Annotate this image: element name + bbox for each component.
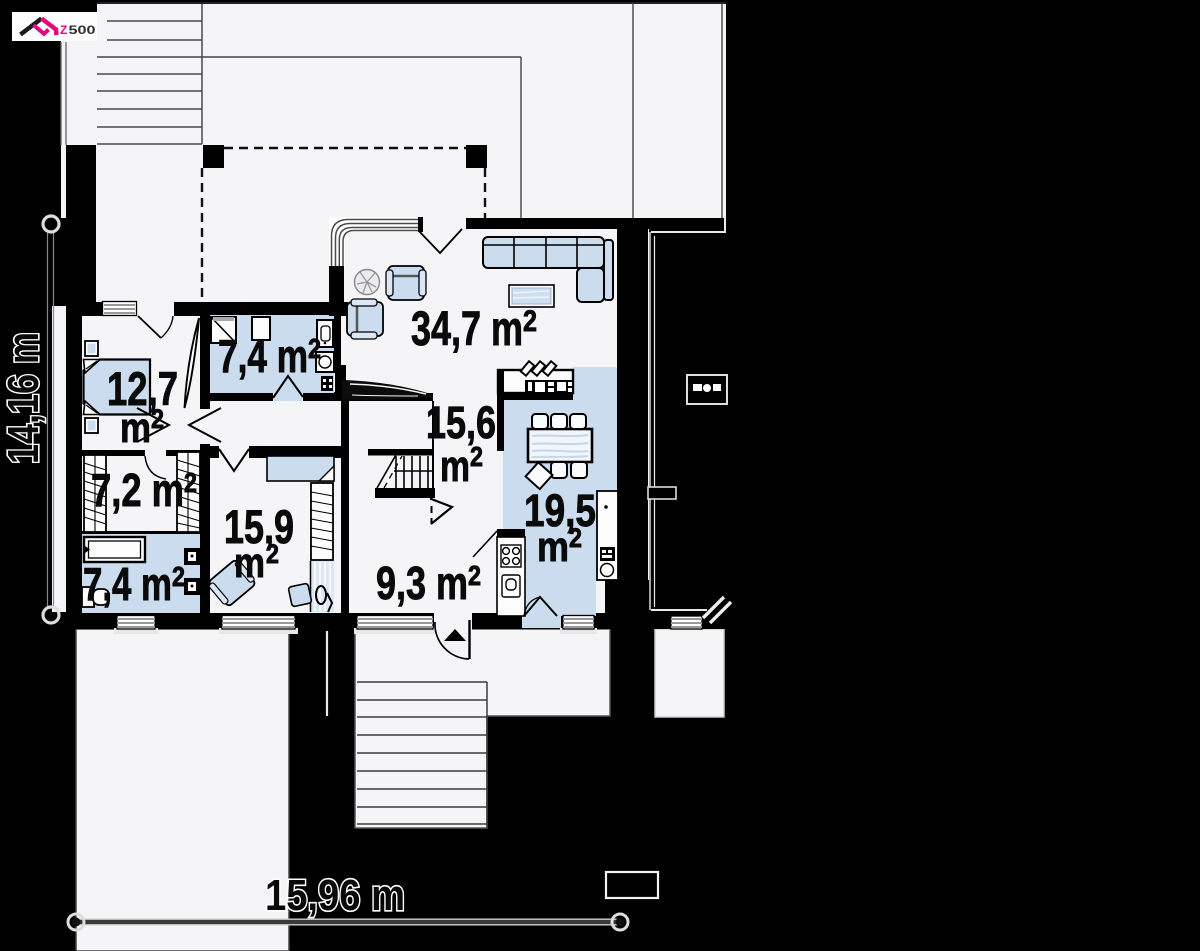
svg-text:7,2 m: 7,2 m <box>91 464 184 516</box>
svg-text:14,16 m: 14,16 m <box>0 332 48 464</box>
svg-text:15,96 m: 15,96 m <box>265 871 405 920</box>
svg-text:m: m <box>537 523 569 570</box>
svg-text:7,4 m: 7,4 m <box>83 558 172 610</box>
svg-text:34,7 m: 34,7 m <box>411 303 523 356</box>
svg-text:2: 2 <box>184 467 197 498</box>
svg-text:9,3 m: 9,3 m <box>376 557 468 609</box>
svg-text:2: 2 <box>151 404 164 434</box>
svg-text:2: 2 <box>266 539 279 569</box>
svg-text:15,6: 15,6 <box>426 397 496 448</box>
svg-text:m: m <box>120 404 151 451</box>
svg-text:2: 2 <box>172 561 185 592</box>
svg-text:2: 2 <box>523 305 537 338</box>
svg-text:500: 500 <box>69 23 96 37</box>
svg-text:m: m <box>234 539 265 586</box>
svg-text:2: 2 <box>468 560 481 591</box>
svg-text:Z: Z <box>60 23 67 37</box>
svg-text:2: 2 <box>470 441 483 472</box>
svg-text:2: 2 <box>569 523 582 553</box>
svg-text:7,4 m: 7,4 m <box>218 330 308 382</box>
svg-text:m: m <box>440 442 470 491</box>
svg-text:2: 2 <box>308 333 321 364</box>
